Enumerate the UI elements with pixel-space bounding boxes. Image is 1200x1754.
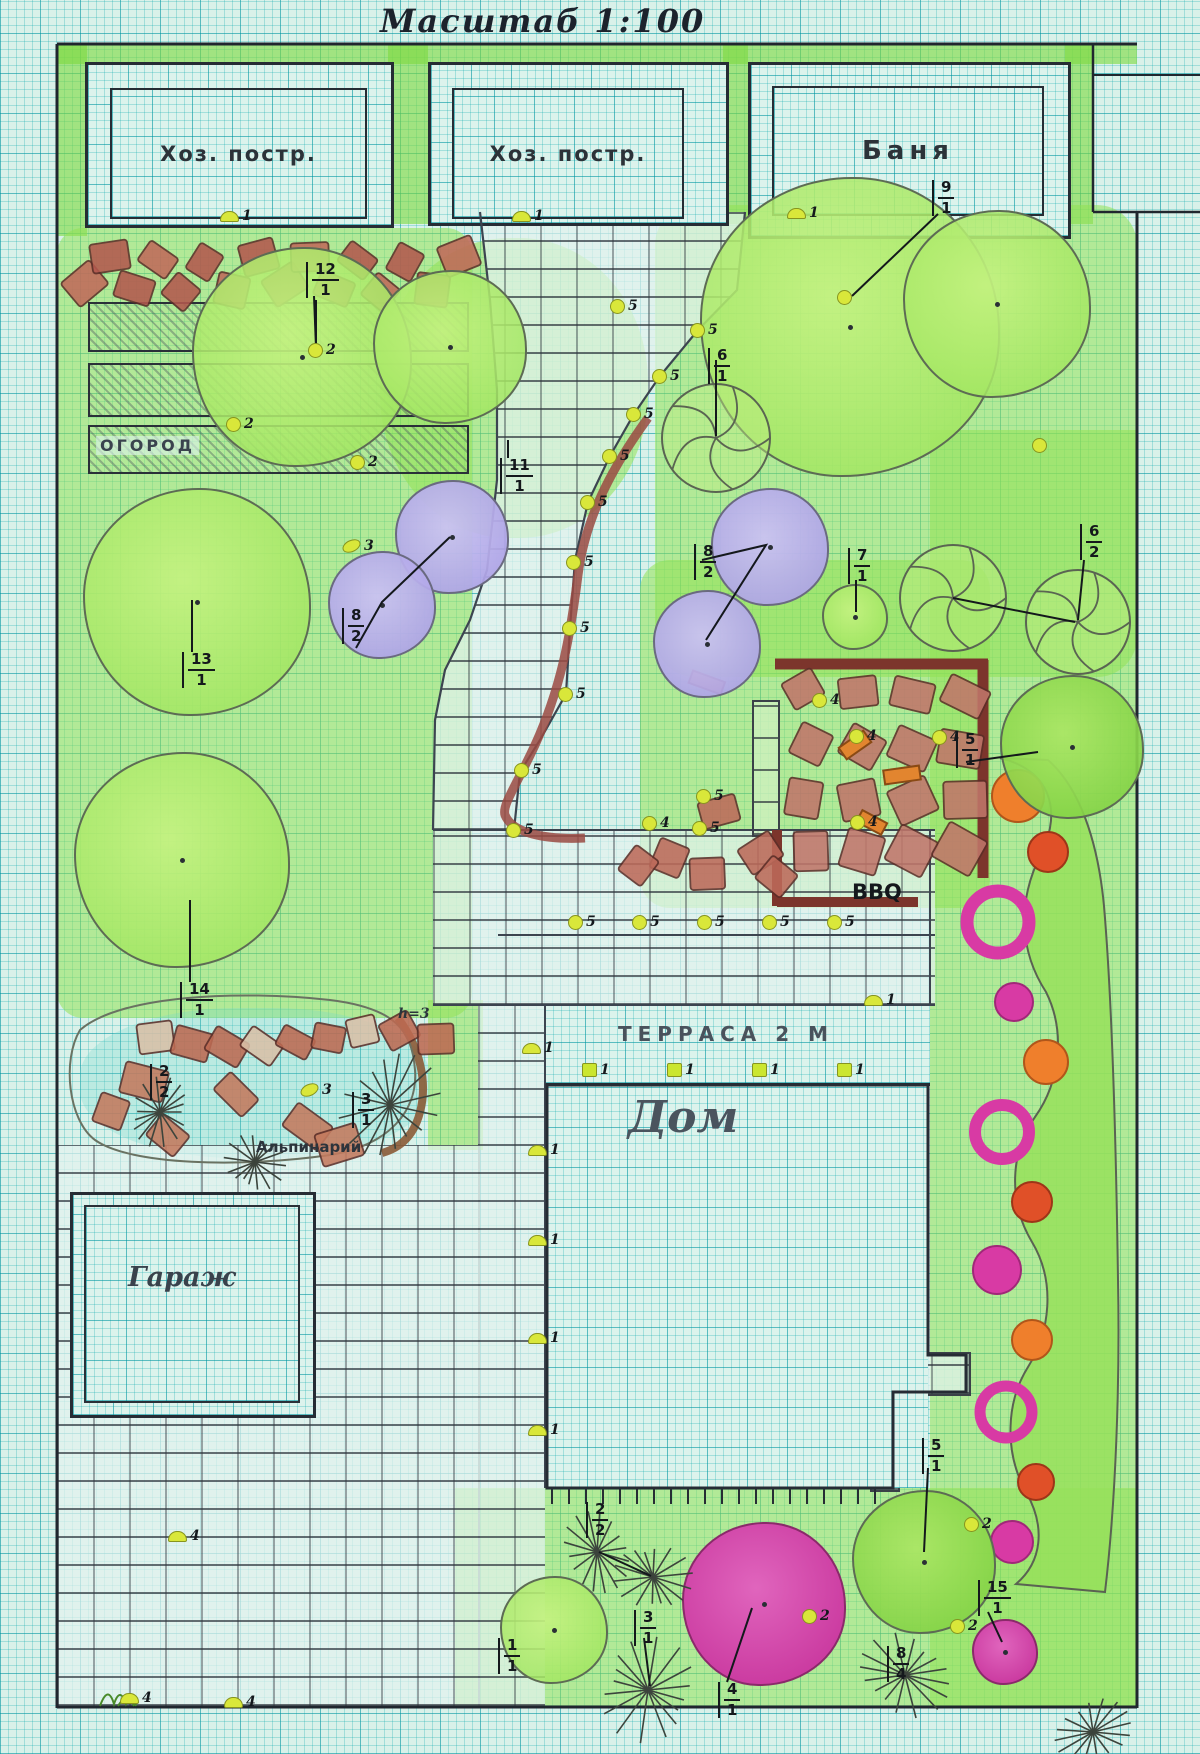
plant-fraction-marker: 22 xyxy=(150,1064,172,1100)
plant-dot-icon xyxy=(528,1425,547,1436)
plant-dot-marker: 5 xyxy=(514,762,542,778)
plant-dot-icon xyxy=(787,208,806,219)
plant-dot-icon xyxy=(506,823,521,838)
plant-dot-icon xyxy=(932,730,947,745)
plant-dot-marker: 5 xyxy=(626,406,654,422)
tree-deciduous-2 xyxy=(373,270,527,424)
plant-dot-marker: 4 xyxy=(850,814,878,830)
plant-dot-marker: 5 xyxy=(562,620,590,636)
plant-dot-icon xyxy=(692,821,707,836)
plant-dot-icon xyxy=(528,1145,547,1156)
rockery-aqua-wash xyxy=(80,1008,430,1158)
plant-dot-marker: 1 xyxy=(667,1062,695,1078)
magenta-tree-large xyxy=(682,1522,846,1686)
plant-dot-icon xyxy=(120,1693,139,1704)
plant-dot-marker: 4 xyxy=(168,1528,200,1544)
magenta-bush-small xyxy=(972,1619,1038,1685)
plant-dot-icon xyxy=(350,455,365,470)
plant-fraction-marker: 121 xyxy=(306,262,339,298)
sheet-title: Масштаб 1:100 xyxy=(380,2,705,40)
plant-dot-marker: 1 xyxy=(864,992,896,1008)
plant-dot-icon xyxy=(514,763,529,778)
plant-dot-icon xyxy=(308,343,323,358)
plant-dot-marker: 3 xyxy=(300,1082,332,1098)
plant-fraction-marker: 31 xyxy=(352,1092,374,1128)
plant-dot-icon xyxy=(528,1333,547,1344)
plant-dot-marker: 5 xyxy=(696,788,724,804)
plant-dot-marker: 5 xyxy=(602,448,630,464)
plant-fraction-marker: 22 xyxy=(586,1502,608,1538)
plant-dot-icon xyxy=(762,915,777,930)
plant-fraction-marker: 82 xyxy=(694,544,716,580)
plant-dot-marker: 5 xyxy=(568,914,596,930)
tree-deciduous-4 xyxy=(74,752,290,968)
plant-dot-marker: 5 xyxy=(632,914,660,930)
plant-dot-icon xyxy=(849,729,864,744)
plant-dot-icon xyxy=(837,290,852,305)
plant-dot-marker: 5 xyxy=(690,322,718,338)
tree-bottom-right xyxy=(852,1490,996,1634)
plant-dot-icon xyxy=(568,915,583,930)
plant-dot-icon xyxy=(837,1063,852,1077)
lawn-top-strip xyxy=(57,44,1137,64)
tree-large-right-2 xyxy=(903,210,1091,398)
plant-dot-icon xyxy=(964,1517,979,1532)
tree-right-border xyxy=(1000,675,1144,819)
plant-dot-marker: 1 xyxy=(787,205,819,221)
plant-dot-icon xyxy=(752,1063,767,1077)
plant-fraction-marker: 71 xyxy=(848,548,870,584)
bush-small-7-1 xyxy=(822,584,888,650)
height-note-label: h=3 xyxy=(398,1006,430,1022)
plant-dot-marker: 5 xyxy=(506,822,534,838)
plant-dot-marker: 1 xyxy=(752,1062,780,1078)
plant-dot-icon xyxy=(652,369,667,384)
plant-fraction-marker: 91 xyxy=(932,180,954,216)
plant-dot-marker: 5 xyxy=(652,368,680,384)
plant-dot-marker: 5 xyxy=(566,554,594,570)
plant-dot-icon xyxy=(566,555,581,570)
house-area xyxy=(547,1085,928,1488)
plant-dot-icon xyxy=(340,537,362,556)
plant-dot-icon xyxy=(950,1619,965,1634)
plant-dot-marker: 5 xyxy=(762,914,790,930)
plant-dot-marker: 1 xyxy=(582,1062,610,1078)
plant-fraction-marker: 61 xyxy=(708,348,730,384)
plant-dot-marker: 1 xyxy=(528,1142,560,1158)
plant-dot-marker: 2 xyxy=(226,416,254,432)
plant-dot-marker: 2 xyxy=(350,454,378,470)
building-2-label: Хоз. постр. xyxy=(490,142,647,166)
plant-dot-marker: 4 xyxy=(812,692,840,708)
plant-fraction-marker: 31 xyxy=(634,1610,656,1646)
plant-dot-icon xyxy=(226,417,241,432)
plant-dot-marker: 1 xyxy=(837,1062,865,1078)
plant-dot-marker: 1 xyxy=(512,208,544,224)
banya-label: Баня xyxy=(862,136,954,166)
purple-bush-center-1 xyxy=(711,488,829,606)
plant-fraction-marker: 51 xyxy=(922,1438,944,1474)
lawn-left-of-walkway xyxy=(428,1000,483,1150)
lawn-strip-left-of-building1 xyxy=(57,44,87,236)
terrace-apron-paving xyxy=(433,830,935,1005)
plant-dot-marker: 4 xyxy=(224,1694,256,1710)
plant-fraction-marker: 131 xyxy=(182,652,215,688)
plant-dot-icon xyxy=(528,1235,547,1246)
plant-dot-marker xyxy=(1032,438,1050,453)
plant-dot-icon xyxy=(667,1063,682,1077)
bbq-step-strip xyxy=(752,700,780,837)
plant-fraction-marker: 141 xyxy=(180,982,213,1018)
plant-dot-marker: 3 xyxy=(342,538,374,554)
plant-dot-marker: 5 xyxy=(827,914,855,930)
plant-dot-marker: 4 xyxy=(120,1690,152,1706)
plant-dot-icon xyxy=(220,211,239,222)
plant-dot-marker: 1 xyxy=(528,1330,560,1346)
plant-dot-icon xyxy=(642,816,657,831)
lawn-strip-between-buildings-1 xyxy=(388,44,428,224)
plant-dot-icon xyxy=(1032,438,1047,453)
plant-dot-icon xyxy=(632,915,647,930)
garage-area xyxy=(84,1205,300,1403)
plant-dot-icon xyxy=(580,495,595,510)
plant-fraction-marker: 84 xyxy=(887,1646,909,1682)
plant-dot-marker: 5 xyxy=(692,820,720,836)
plant-dot-icon xyxy=(298,1081,320,1100)
plant-dot-marker: 2 xyxy=(950,1618,978,1634)
plant-dot-icon xyxy=(812,693,827,708)
plant-dot-marker: 5 xyxy=(580,494,608,510)
flower-blobs xyxy=(967,770,1068,1563)
building-1: Хоз. постр. xyxy=(110,88,367,219)
plant-dot-marker: 1 xyxy=(220,208,252,224)
plant-dot-marker: 2 xyxy=(308,342,336,358)
plant-fraction-marker: 41 xyxy=(718,1682,740,1718)
plant-dot-marker: 4 xyxy=(642,815,670,831)
plant-dot-marker: 1 xyxy=(528,1232,560,1248)
plant-dot-icon xyxy=(512,211,531,222)
purple-bush-center-2 xyxy=(653,590,761,698)
plant-dot-marker xyxy=(837,290,855,305)
plant-dot-icon xyxy=(626,407,641,422)
plant-dot-marker: 2 xyxy=(802,1608,830,1624)
plant-dot-marker: 1 xyxy=(522,1040,554,1056)
plant-dot-marker: 1 xyxy=(528,1422,560,1438)
garden-plan-sheet: { "title": "Масштаб 1:100", "buildings":… xyxy=(0,0,1200,1754)
plant-fraction-marker: 82 xyxy=(342,608,364,644)
plant-dot-icon xyxy=(522,1043,541,1054)
plant-dot-marker: 2 xyxy=(964,1516,992,1532)
plant-dot-marker: 5 xyxy=(697,914,725,930)
plant-dot-icon xyxy=(562,621,577,636)
plant-dot-icon xyxy=(827,915,842,930)
plant-fraction-marker: 11 xyxy=(498,1638,520,1674)
plant-dot-icon xyxy=(224,1697,243,1708)
plant-fraction-marker: 62 xyxy=(1080,524,1102,560)
plant-dot-icon xyxy=(602,449,617,464)
plant-fraction-marker: 111 xyxy=(500,458,533,494)
plant-dot-icon xyxy=(696,789,711,804)
plant-dot-marker: 5 xyxy=(610,298,638,314)
plant-dot-icon xyxy=(864,995,883,1006)
bbq-benches xyxy=(689,671,921,835)
plant-dot-icon xyxy=(610,299,625,314)
building-2: Хоз. постр. xyxy=(452,88,684,219)
plant-dot-icon xyxy=(802,1609,817,1624)
plant-dot-marker: 4 xyxy=(932,729,960,745)
building-1-label: Хоз. постр. xyxy=(160,142,317,166)
plant-dot-icon xyxy=(558,687,573,702)
plant-dot-icon xyxy=(697,915,712,930)
plant-dot-icon xyxy=(582,1063,597,1077)
plant-dot-icon xyxy=(850,815,865,830)
plant-dot-icon xyxy=(168,1531,187,1542)
plant-dot-marker: 4 xyxy=(849,728,877,744)
plant-fraction-marker: 151 xyxy=(978,1580,1011,1616)
plant-dot-icon xyxy=(690,323,705,338)
plant-dot-marker: 5 xyxy=(558,686,586,702)
